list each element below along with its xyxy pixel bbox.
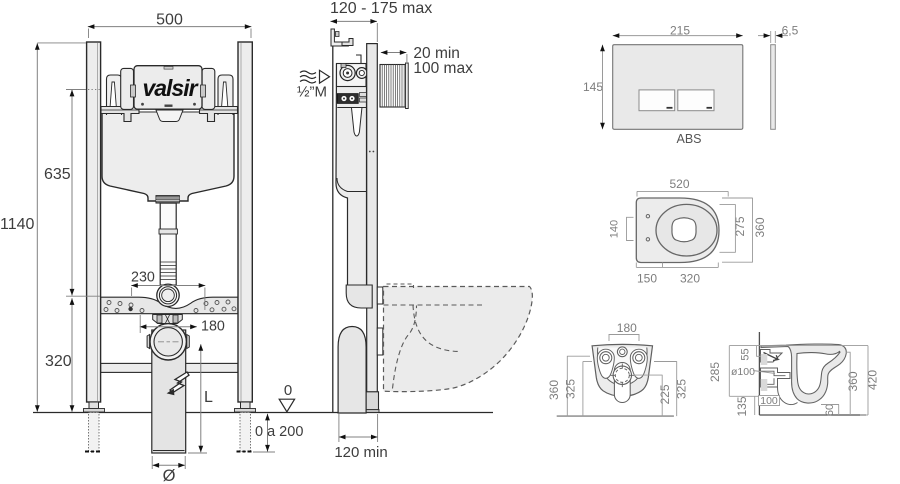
svg-text:120 - 175 max: 120 - 175 max (330, 0, 432, 17)
svg-text:0: 0 (284, 382, 292, 399)
svg-text:150: 150 (637, 272, 657, 286)
svg-text:120 min: 120 min (334, 444, 387, 461)
svg-text:L: L (204, 389, 213, 406)
svg-text:285: 285 (708, 362, 722, 382)
svg-text:180: 180 (617, 321, 637, 335)
svg-text:325: 325 (564, 379, 578, 399)
svg-text:0 a 200: 0 a 200 (255, 424, 303, 440)
svg-text:ABS: ABS (676, 132, 701, 146)
svg-text:360: 360 (846, 371, 860, 391)
svg-text:60: 60 (824, 404, 836, 416)
svg-text:635: 635 (44, 166, 71, 183)
svg-text:Ø: Ø (163, 467, 176, 484)
svg-text:135: 135 (735, 396, 749, 416)
svg-text:320: 320 (45, 353, 72, 370)
svg-text:1140: 1140 (0, 216, 35, 233)
svg-text:500: 500 (156, 12, 183, 29)
svg-text:½”M: ½”M (297, 84, 327, 101)
svg-text:145: 145 (583, 80, 603, 94)
svg-text:180: 180 (201, 319, 225, 335)
svg-text:valsir: valsir (142, 75, 198, 101)
svg-text:360: 360 (753, 217, 767, 237)
svg-text:140: 140 (609, 220, 621, 238)
svg-text:320: 320 (680, 272, 700, 286)
svg-text:230: 230 (131, 270, 155, 286)
svg-text:360: 360 (547, 380, 561, 400)
svg-text:225: 225 (658, 384, 672, 404)
svg-text:ø100: ø100 (731, 366, 755, 378)
svg-text:100: 100 (760, 395, 778, 407)
svg-text:100 max: 100 max (413, 60, 473, 77)
svg-text:55: 55 (740, 348, 752, 360)
svg-text:520: 520 (669, 177, 689, 191)
